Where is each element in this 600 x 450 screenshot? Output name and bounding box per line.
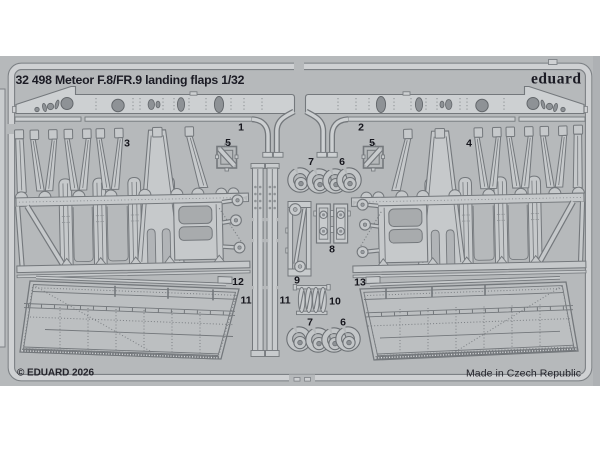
svg-text:9: 9 bbox=[294, 275, 300, 287]
svg-text:© EDUARD 2026: © EDUARD 2026 bbox=[17, 368, 94, 379]
svg-text:13: 13 bbox=[354, 277, 366, 289]
svg-text:eduard: eduard bbox=[531, 71, 581, 88]
svg-text:7: 7 bbox=[307, 317, 313, 329]
svg-text:12: 12 bbox=[232, 276, 244, 288]
svg-text:3: 3 bbox=[124, 138, 130, 150]
svg-text:7: 7 bbox=[308, 156, 314, 168]
svg-text:5: 5 bbox=[369, 137, 375, 149]
svg-text:10: 10 bbox=[329, 296, 341, 308]
svg-text:6: 6 bbox=[339, 156, 345, 168]
svg-text:1: 1 bbox=[238, 122, 244, 134]
svg-text:8: 8 bbox=[329, 244, 335, 256]
svg-text:2: 2 bbox=[358, 122, 364, 134]
svg-text:32 498 Meteor F.8/FR.9 landing: 32 498 Meteor F.8/FR.9 landing flaps 1/3… bbox=[16, 73, 245, 87]
svg-text:6: 6 bbox=[340, 317, 346, 329]
svg-text:5: 5 bbox=[225, 137, 231, 149]
svg-text:11: 11 bbox=[279, 295, 290, 307]
svg-text:11: 11 bbox=[240, 295, 251, 307]
svg-text:4: 4 bbox=[466, 138, 472, 150]
svg-text:Made in Czech Republic: Made in Czech Republic bbox=[466, 368, 581, 380]
